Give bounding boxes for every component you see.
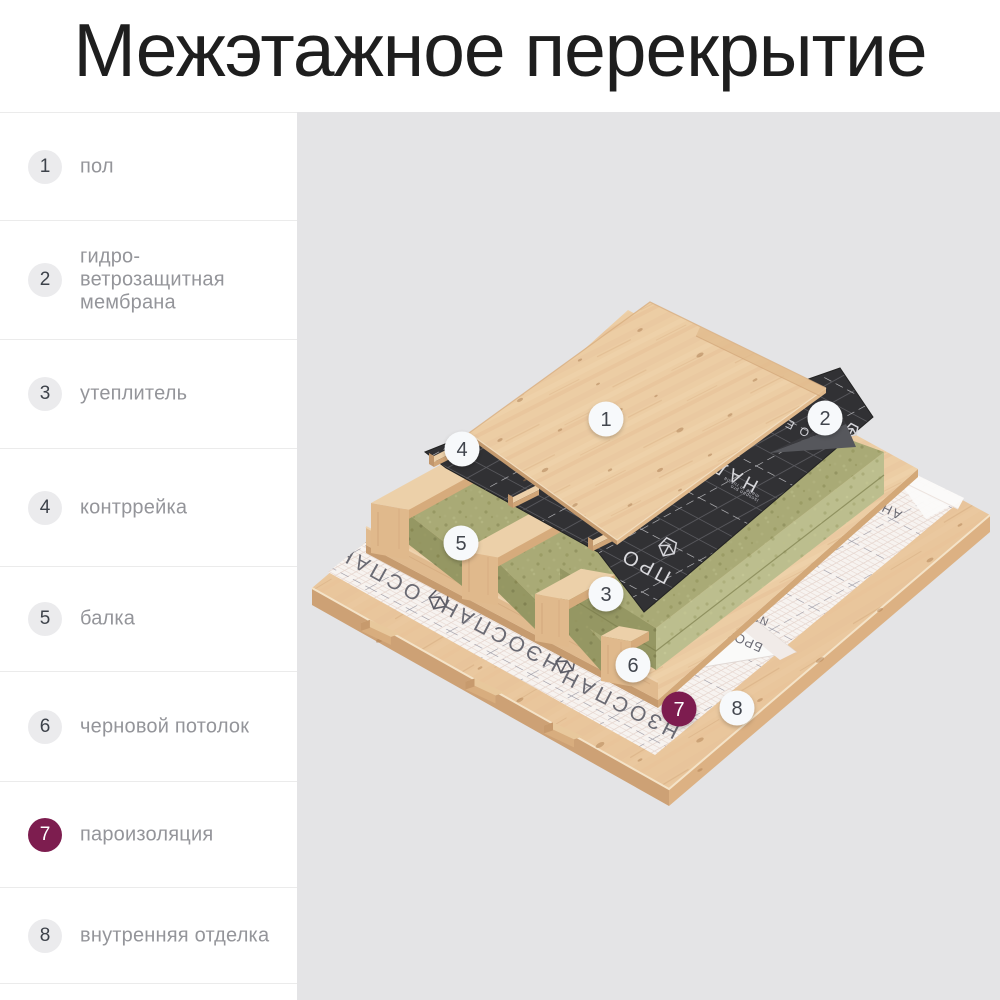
svg-text:7: 7 xyxy=(673,699,684,721)
svg-text:5: 5 xyxy=(455,533,466,555)
svg-text:8: 8 xyxy=(731,698,742,720)
svg-text:4: 4 xyxy=(456,439,467,461)
svg-text:6: 6 xyxy=(627,655,638,677)
svg-text:1: 1 xyxy=(600,409,611,431)
svg-text:3: 3 xyxy=(600,584,611,606)
svg-text:2: 2 xyxy=(819,408,830,430)
